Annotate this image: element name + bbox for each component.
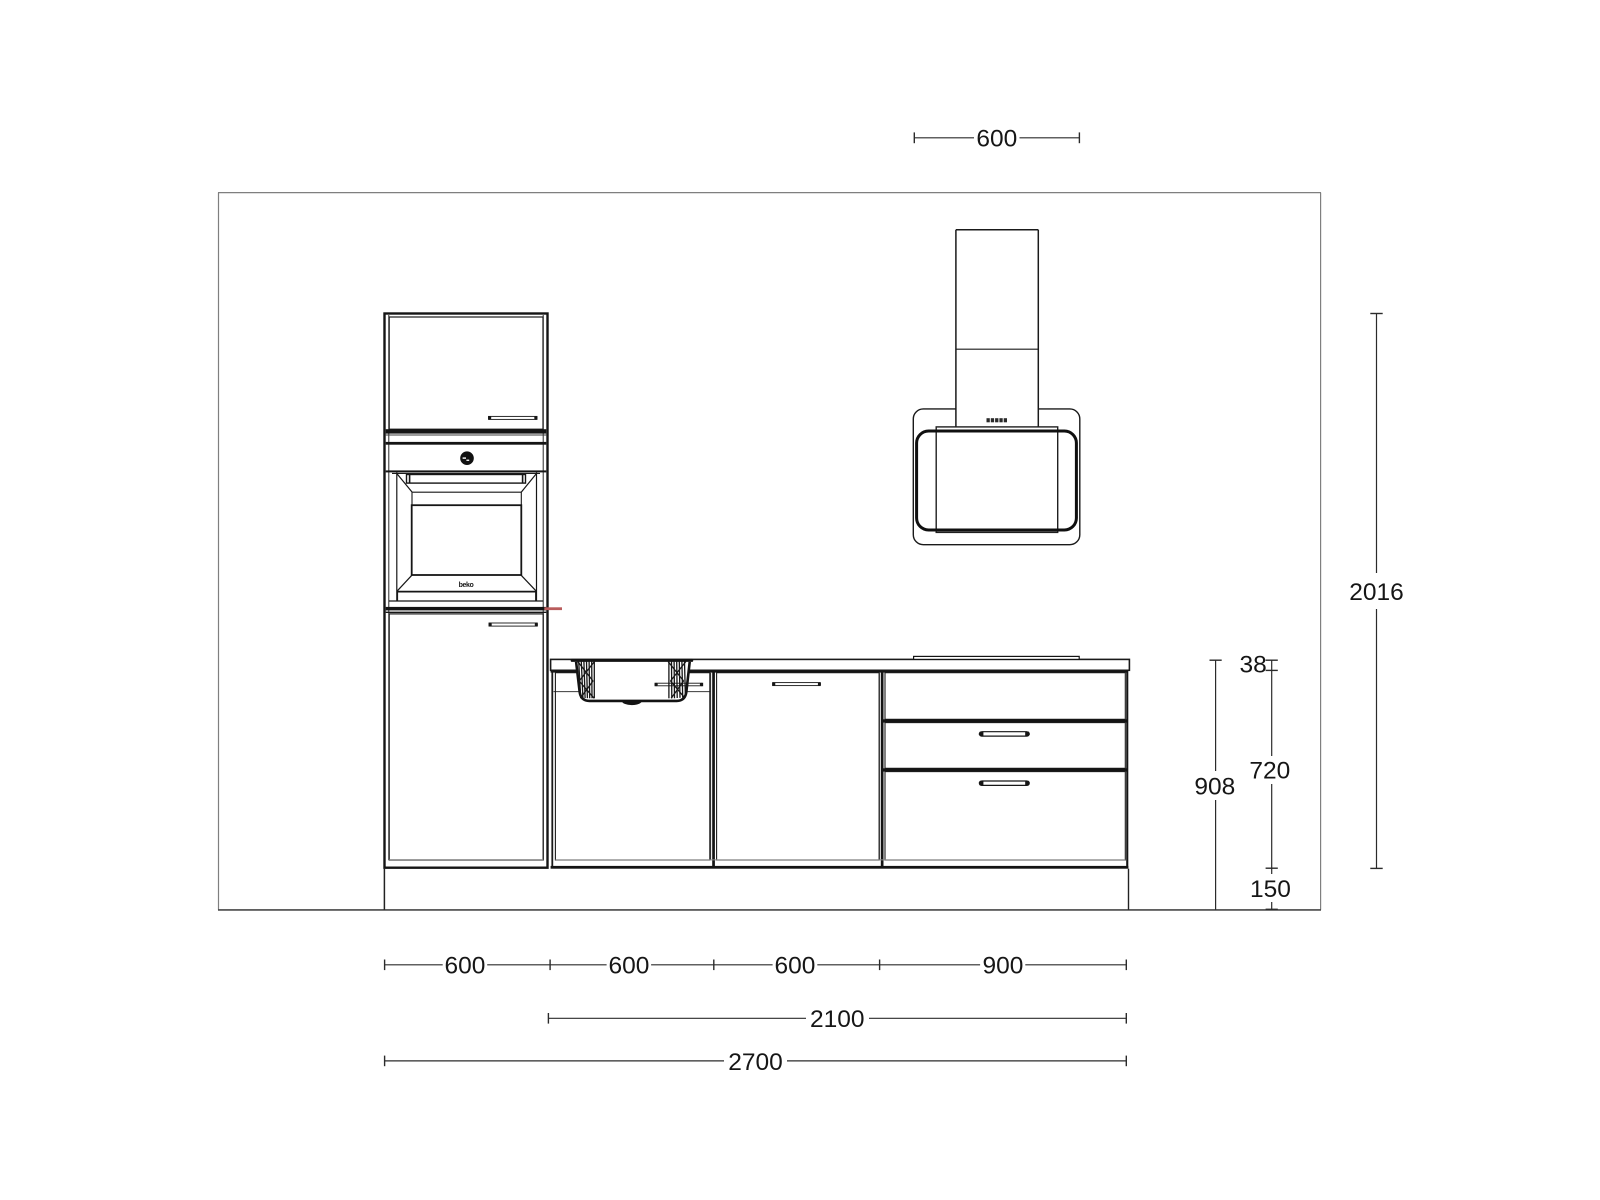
svg-text:600: 600 [445,953,486,980]
svg-text:150: 150 [1250,876,1291,903]
svg-text:2700: 2700 [728,1049,783,1076]
svg-text:2100: 2100 [810,1006,865,1033]
svg-text:908: 908 [1194,773,1235,800]
svg-text:600: 600 [976,126,1017,153]
svg-text:600: 600 [775,953,816,980]
svg-text:38: 38 [1240,651,1267,678]
svg-text:beko: beko [459,582,474,589]
svg-text:900: 900 [982,953,1023,980]
svg-text:600: 600 [609,953,650,980]
svg-text:720: 720 [1249,758,1290,785]
svg-text:2016: 2016 [1349,579,1404,606]
